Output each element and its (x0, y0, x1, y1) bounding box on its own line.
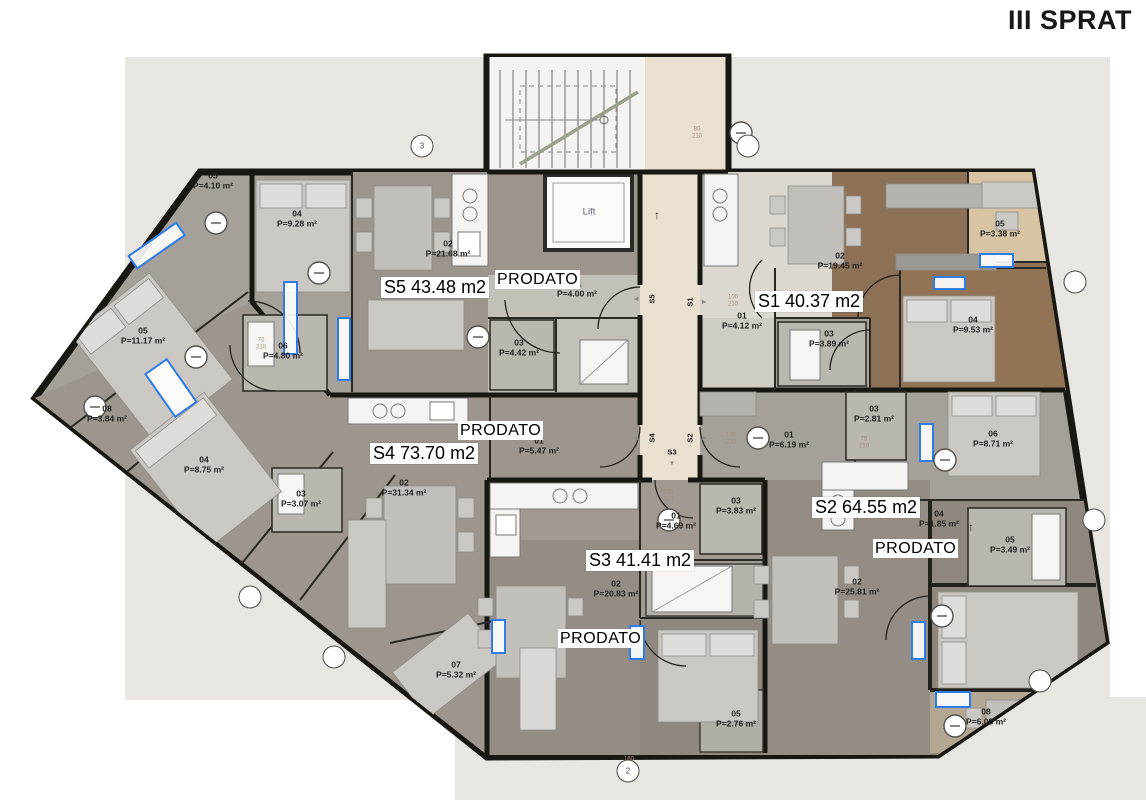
grid-bubble: 2 (617, 760, 640, 783)
room-label-s1-01: 01P=4.12 m² (722, 312, 762, 331)
floor-plan-drawing (0, 0, 1146, 800)
grid-bubble (737, 135, 760, 158)
up-arrow: ↑ (654, 208, 660, 222)
entrance-arrow: ◀ (634, 435, 639, 442)
up-arrow: ↑ (968, 520, 974, 534)
room-label-s3-01: 01P=4.69 m² (656, 512, 696, 531)
floor-plan-canvas: III SPRAT Lift 05P=4.10 m²04P=9.28 m²02P… (0, 0, 1146, 800)
grid-bubble (1029, 670, 1052, 693)
sold-label-s3: PRODATO (558, 629, 643, 648)
room-label-s4-04: 04P=8.75 m² (184, 456, 224, 475)
room-label-s4-02: 02P=31.34 m² (382, 479, 427, 498)
room-label-s4-05: 05P=11.17 m² (121, 327, 165, 346)
room-label-s1-04: 04P=9.53 m² (953, 316, 993, 335)
apartment-label-s5: S5 43.48 m2 (381, 277, 489, 298)
room-label-s2-05: 05P=3.49 m² (990, 536, 1030, 555)
dimension-label: 100210 (726, 433, 736, 446)
room-label-s3-03: 03P=3.83 m² (716, 497, 756, 516)
room-label-s1-02: 02P=19.45 m² (818, 252, 863, 271)
entrance-tag-s5: S5 (648, 294, 657, 303)
entrance-arrow: ▶ (702, 299, 707, 306)
entrance-tag-s2: S2 (686, 433, 695, 442)
room-label-s2-06: 06P=8.71 m² (973, 430, 1013, 449)
apartment-label-s1: S1 40.37 m2 (755, 291, 863, 312)
room-label-s4-07: 07P=5.32 m² (436, 661, 476, 680)
room-label-s5-03: 03P=4.42 m² (499, 339, 539, 358)
room-label-s3-05: 05P=2.76 m² (716, 710, 756, 729)
apartment-label-s2: S2 64.55 m2 (812, 497, 920, 518)
room-label-s1-05: 05P=3.38 m² (980, 220, 1020, 239)
dimension-label: 80210 (692, 127, 702, 140)
sold-label-s5: PRODATO (495, 270, 580, 289)
dimension-label: 100210 (663, 490, 673, 503)
apartment-label-s4: S4 73.70 m2 (370, 443, 478, 464)
room-label-s5-02: 02P=21.68 m² (426, 240, 471, 259)
entrance-tag-s4: S4 (648, 433, 657, 442)
dimension-label: 100210 (728, 295, 738, 308)
room-label-s2-01: 01P=6.19 m² (769, 431, 809, 450)
dimension-label: 75210 (859, 437, 869, 450)
room-label-s4-08: 08P=3.84 m² (87, 405, 127, 424)
sold-label-s2: PRODATO (873, 539, 958, 558)
room-label-s4-03: 03P=3.07 m² (281, 490, 321, 509)
room-label-s5-05: 05P=4.10 m² (193, 172, 233, 191)
entrance-tag-s1: S1 (686, 297, 695, 306)
grid-bubble (239, 586, 262, 609)
room-label-s1-03: 03P=3.89 m² (809, 330, 849, 349)
grid-bubble (1064, 271, 1087, 294)
entrance-tag-s3: S3 (667, 448, 676, 457)
entrance-arrow: ◀ (634, 296, 639, 303)
grid-bubble (323, 646, 346, 669)
apartment-label-s3: S3 41.41 m2 (586, 550, 694, 571)
entrance-arrow: ▶ (702, 435, 707, 442)
entrance-arrow: ▼ (669, 461, 675, 467)
room-label-s3-02: 02P=20.83 m² (594, 580, 639, 599)
page-title: III SPRAT (1008, 5, 1132, 36)
room-label-s4-06: 06P=4.80 m² (263, 342, 303, 361)
grid-bubble (1083, 509, 1106, 532)
sold-label-s4: PRODATO (458, 421, 543, 440)
lift-label: Lift (583, 207, 596, 218)
room-label-s2-08: 08P=6.08 m² (966, 708, 1006, 727)
room-label-s2-02: 02P=25.81 m² (835, 578, 880, 597)
grid-bubble: 3 (411, 135, 434, 158)
room-label-s2-04: 04P=1.85 m² (919, 510, 959, 529)
room-label-s2-03: 03P=2.81 m² (854, 405, 894, 424)
room-label-s5-04: 04P=9.28 m² (277, 210, 317, 229)
